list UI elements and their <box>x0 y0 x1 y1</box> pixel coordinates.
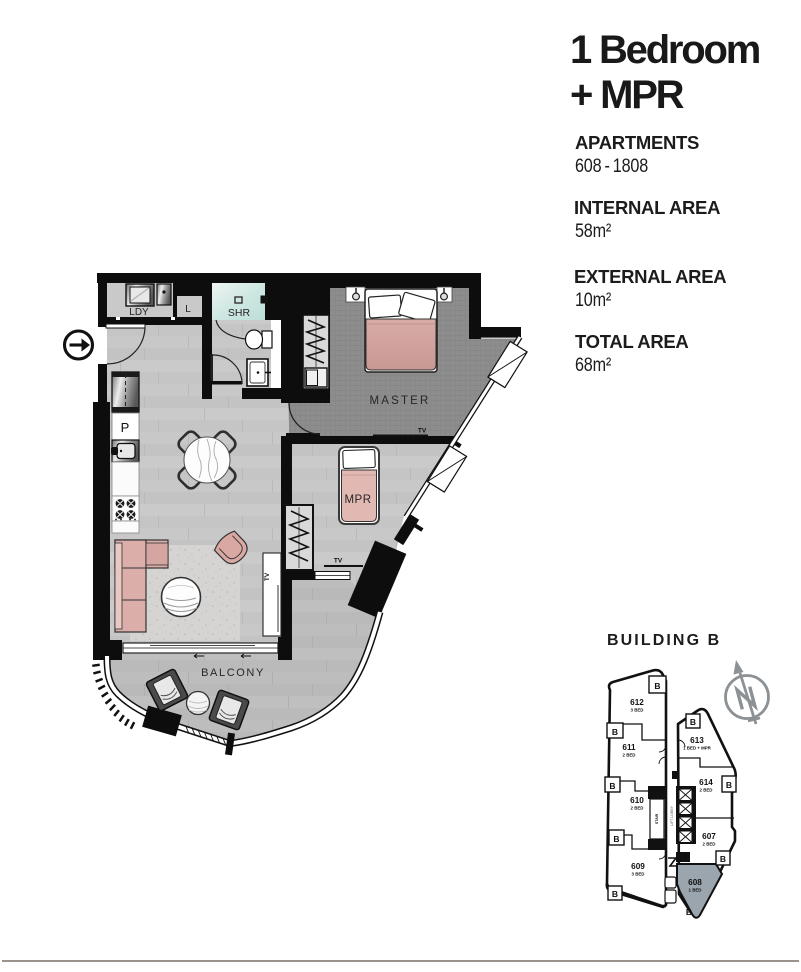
svg-text:TV: TV <box>334 558 343 565</box>
svg-text:612: 612 <box>630 698 644 707</box>
svg-text:B: B <box>690 717 696 727</box>
svg-text:610: 610 <box>630 796 644 805</box>
svg-text:B: B <box>726 780 732 790</box>
svg-text:608: 608 <box>688 878 702 887</box>
svg-text:1 BED: 1 BED <box>689 888 702 893</box>
svg-text:1 BED + MPR: 1 BED + MPR <box>683 746 712 751</box>
svg-text:2 BED: 2 BED <box>631 806 644 811</box>
svg-text:2 BED: 2 BED <box>700 788 713 793</box>
svg-text:P: P <box>121 420 130 435</box>
svg-text:613: 613 <box>690 736 704 745</box>
svg-text:614: 614 <box>699 778 713 787</box>
svg-text:B: B <box>612 727 618 737</box>
svg-text:B: B <box>613 834 619 844</box>
svg-text:SHR: SHR <box>228 307 251 319</box>
svg-text:609: 609 <box>631 862 645 871</box>
svg-text:611: 611 <box>622 743 636 752</box>
svg-text:MPR: MPR <box>344 494 371 506</box>
svg-text:MASTER: MASTER <box>369 395 430 407</box>
svg-text:LIFT LOBBY: LIFT LOBBY <box>670 805 674 826</box>
svg-text:2 BED: 2 BED <box>623 753 636 758</box>
svg-text:TV: TV <box>264 572 271 581</box>
svg-text:B: B <box>654 681 660 691</box>
svg-text:B: B <box>686 907 692 917</box>
svg-text:B: B <box>612 889 618 899</box>
svg-text:TV: TV <box>418 428 427 435</box>
svg-text:3 BED: 3 BED <box>632 872 645 877</box>
svg-text:L: L <box>185 304 191 315</box>
svg-text:3 BED: 3 BED <box>631 708 644 713</box>
svg-text:BALCONY: BALCONY <box>201 667 265 679</box>
svg-text:B: B <box>609 781 615 791</box>
svg-text:STAIR: STAIR <box>655 813 659 824</box>
svg-text:607: 607 <box>702 832 716 841</box>
svg-text:2 BED: 2 BED <box>703 842 716 847</box>
svg-text:B: B <box>720 854 726 864</box>
svg-text:LDY: LDY <box>129 307 149 318</box>
